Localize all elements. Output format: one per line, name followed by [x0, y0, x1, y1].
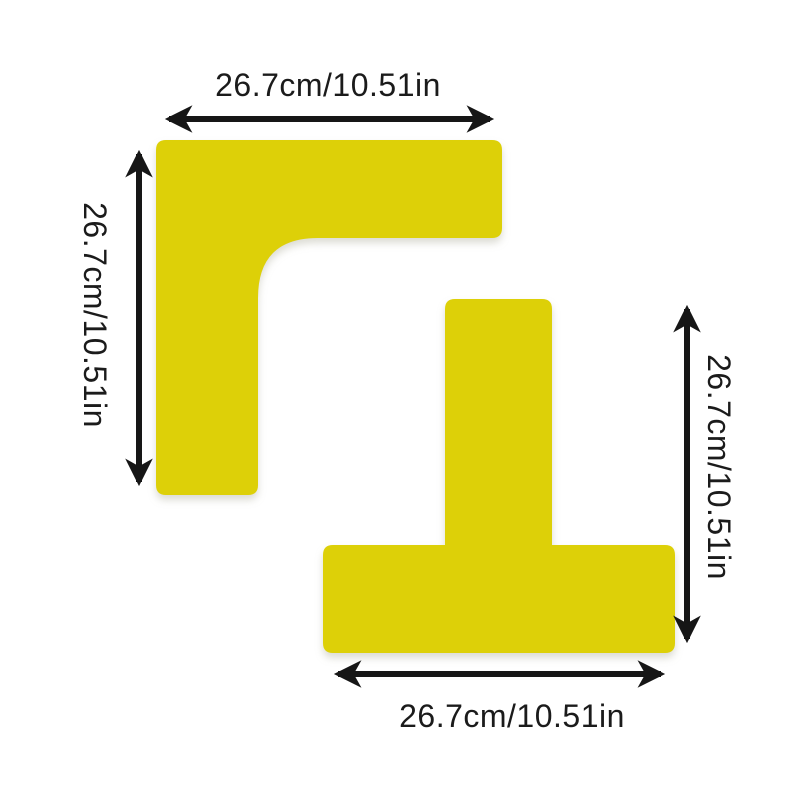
t-marker-height-label: 26.7cm/10.51in: [701, 354, 737, 580]
t-marker-width-label: 26.7cm/10.51in: [399, 698, 625, 734]
diagram-canvas: 26.7cm/10.51in 26.7cm/10.51in 26.7cm/10.…: [0, 0, 800, 800]
dimension-diagram: 26.7cm/10.51in 26.7cm/10.51in 26.7cm/10.…: [0, 0, 800, 800]
t-marker-shape: [323, 299, 675, 653]
l-marker-height-label: 26.7cm/10.51in: [77, 202, 113, 428]
l-marker-width-label: 26.7cm/10.51in: [215, 67, 441, 103]
